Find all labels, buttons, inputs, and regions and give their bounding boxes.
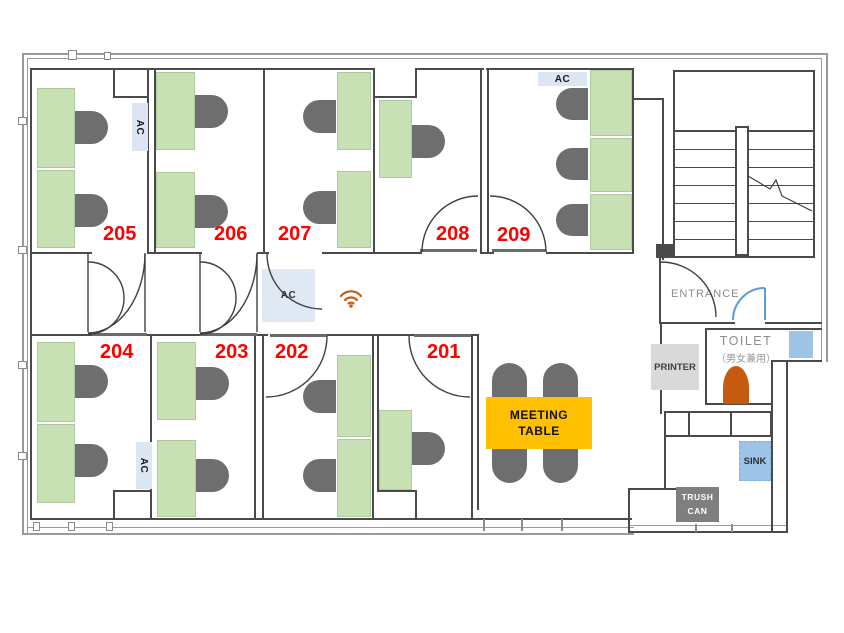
cabinet-divider: [688, 413, 690, 435]
wall: [150, 334, 152, 520]
window-tick: [731, 524, 733, 532]
chair: [75, 111, 108, 144]
door-threshold: [92, 333, 147, 336]
door-threshold: [414, 334, 471, 337]
wall: [826, 53, 828, 362]
wall: [630, 525, 788, 526]
wall: [705, 328, 822, 330]
window-mullion: [106, 522, 113, 531]
wall: [765, 322, 822, 324]
stair-handrail: [735, 126, 749, 256]
cabinet-divider: [730, 413, 732, 435]
door-arc: [200, 262, 236, 334]
chair: [556, 148, 588, 180]
meeting-chair: [543, 449, 578, 483]
chair: [556, 204, 588, 236]
wall: [377, 490, 417, 492]
cabinet: [664, 411, 772, 437]
wall: [113, 490, 115, 520]
desk: [590, 138, 632, 192]
window-mullion: [18, 361, 27, 369]
meeting-chair: [492, 449, 527, 483]
desk: [37, 88, 75, 168]
wall: [480, 252, 494, 254]
ac-label: AC: [134, 119, 145, 134]
desk: [157, 342, 196, 420]
wall: [113, 96, 149, 98]
wall: [630, 531, 788, 533]
desk: [37, 342, 75, 422]
sink-label: SINK: [744, 456, 767, 467]
desk: [590, 70, 632, 136]
desk: [337, 171, 371, 248]
ac-unit: AC: [132, 103, 148, 151]
wall: [471, 334, 473, 520]
desk: [37, 170, 75, 248]
meeting-chair: [492, 363, 527, 397]
room-label-209: 209: [497, 225, 530, 245]
door-threshold: [270, 334, 327, 337]
chair: [303, 100, 336, 133]
room-label-207: 207: [278, 224, 311, 244]
wall: [374, 96, 417, 98]
room-label-205: 205: [103, 224, 136, 244]
trash-label-line1: TRUSH: [682, 491, 714, 505]
wall: [415, 68, 417, 98]
room-label-201: 201: [427, 342, 460, 362]
chair: [303, 380, 336, 413]
ac-unit: AC: [538, 72, 587, 86]
wall: [664, 437, 666, 490]
desk: [337, 72, 371, 150]
door-threshold: [492, 249, 546, 252]
door-threshold: [420, 249, 477, 252]
wall: [147, 252, 202, 254]
wall: [415, 490, 417, 520]
trash-can: TRUSH CAN: [676, 487, 719, 522]
room-label-203: 203: [215, 342, 248, 362]
door-arc: [200, 253, 257, 333]
wall: [30, 68, 374, 70]
desk: [337, 439, 371, 517]
window-mullion: [18, 452, 27, 460]
window-mullion: [33, 522, 40, 531]
wall: [628, 488, 630, 533]
ac-unit: AC: [262, 269, 315, 322]
chair: [303, 191, 336, 224]
wall: [263, 68, 265, 254]
window-tick: [483, 519, 485, 531]
office-floor-plan: AC AC AC AC PRINTER SINK TRUSH CAN MEETI…: [0, 0, 844, 633]
wall: [546, 252, 634, 254]
wall: [632, 98, 664, 100]
wall: [113, 68, 115, 98]
wall: [480, 68, 482, 254]
wall: [257, 252, 269, 254]
wall: [254, 334, 256, 520]
room-label-206: 206: [214, 224, 247, 244]
window-tick: [561, 519, 563, 531]
toilet-fixture: [723, 366, 749, 404]
chair: [195, 95, 228, 128]
desk: [37, 424, 75, 503]
wall: [821, 58, 822, 362]
trash-label-line2: CAN: [688, 505, 708, 519]
desk: [157, 440, 196, 517]
wall: [22, 53, 24, 535]
wall: [628, 488, 678, 490]
desk: [337, 355, 371, 437]
wall: [262, 334, 264, 520]
door-threshold: [200, 333, 257, 336]
wall: [662, 98, 664, 260]
wall: [30, 334, 92, 336]
ac-label: AC: [281, 290, 296, 301]
ac-label: AC: [555, 74, 570, 85]
door-arc: [88, 253, 145, 333]
chair: [196, 459, 229, 492]
sink: SINK: [739, 441, 771, 481]
chair: [75, 444, 108, 477]
wall: [372, 334, 374, 520]
wall: [771, 360, 773, 533]
window-mullion: [18, 117, 27, 125]
desk: [156, 172, 195, 248]
wall: [28, 58, 822, 59]
desk: [379, 410, 412, 490]
printer-label: PRINTER: [654, 362, 696, 373]
wall: [477, 334, 479, 510]
wall: [322, 252, 375, 254]
wall: [147, 334, 202, 336]
wall: [22, 533, 634, 535]
wall: [113, 490, 152, 492]
wall: [659, 258, 661, 324]
chair: [412, 432, 445, 465]
room-label-204: 204: [100, 342, 133, 362]
door-arc: [88, 262, 124, 334]
toilet-sublabel: （男女兼用）: [698, 350, 794, 365]
ac-label: AC: [138, 458, 149, 473]
window-mullion: [68, 522, 75, 531]
wall: [415, 68, 484, 70]
wall: [22, 53, 828, 55]
window-mullion: [18, 246, 27, 254]
entrance-label: ENTRANCE: [671, 288, 740, 300]
chair: [303, 459, 336, 492]
desk: [156, 72, 195, 150]
wifi-icon: [341, 291, 361, 307]
meeting-table: MEETING TABLE: [486, 397, 592, 449]
wall: [30, 68, 32, 520]
wall: [786, 360, 788, 533]
chair: [75, 365, 108, 398]
staircase: [673, 70, 815, 258]
window-mullion: [104, 52, 111, 60]
room-label-208: 208: [436, 224, 469, 244]
ac-unit: AC: [136, 442, 152, 489]
wall: [27, 58, 28, 535]
desk: [379, 100, 412, 178]
wall: [375, 252, 422, 254]
chair: [556, 88, 588, 120]
wall: [632, 68, 634, 254]
wall: [377, 334, 415, 336]
wall: [30, 518, 632, 520]
wall: [325, 334, 377, 336]
wall: [30, 252, 92, 254]
window-tick: [695, 524, 697, 532]
toilet-label: TOILET: [704, 334, 788, 348]
window-mullion: [68, 50, 77, 60]
meeting-table-label-line1: MEETING: [510, 407, 568, 423]
meeting-chair: [543, 363, 578, 397]
printer: PRINTER: [651, 344, 699, 390]
chair: [196, 367, 229, 400]
wall: [373, 68, 375, 254]
wall: [487, 68, 489, 254]
wall: [659, 322, 735, 324]
window-tick: [521, 519, 523, 531]
desk: [590, 194, 632, 250]
meeting-table-label-line2: TABLE: [518, 423, 560, 439]
wall: [27, 527, 634, 528]
chair: [412, 125, 445, 158]
room-label-202: 202: [275, 342, 308, 362]
